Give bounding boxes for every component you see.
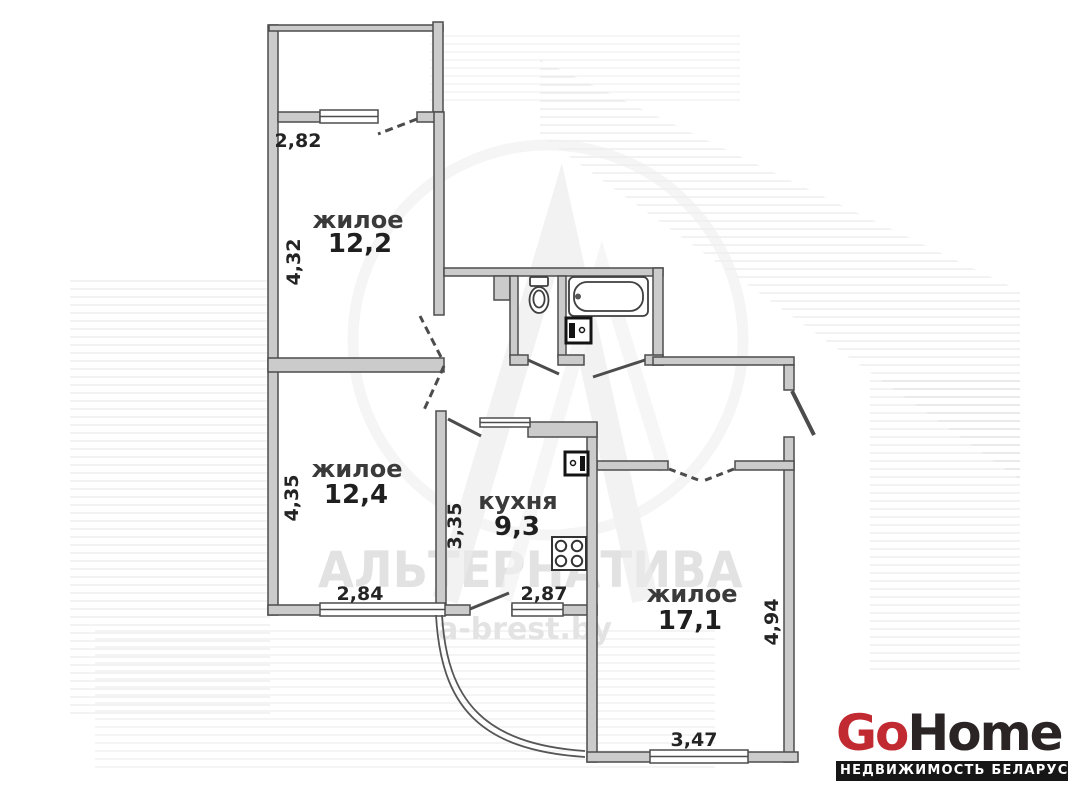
room2-label: жилое [311,455,402,483]
kitchen-area: 9,3 [494,512,540,542]
curved-balcony [436,615,585,757]
gohome-logo: GoHome НЕДВИЖИМОСТЬ БЕЛАРУСИ [836,708,1068,781]
bathtub-icon [569,277,648,316]
dimension-room3-width: 3,47 [671,729,718,751]
kitchen-door-leaf [448,419,481,436]
dimension-room2-depth: 4,35 [281,475,303,522]
floor-plan [0,0,1068,800]
bath-sink-icon [566,318,591,343]
dimension-kitchen-width: 2,87 [521,583,568,605]
stove-icon [552,537,586,570]
kitchen-balcony-door-leaf [470,593,509,609]
toilet-icon [530,277,549,313]
kitchen-label: кухня [478,487,557,515]
balcony-door-leaf [378,119,417,134]
entrance-door-leaf [792,391,814,435]
room1-door-leaf [420,316,441,357]
kitchen-sink-icon [565,452,588,475]
logo-tagline: НЕДВИЖИМОСТЬ БЕЛАРУСИ [836,761,1068,781]
logo-go-text: Go [836,704,907,762]
wc-door-leaf [528,360,559,374]
room1-area: 12,2 [328,229,392,259]
dimension-room2-width: 2,84 [337,583,384,605]
room2-area: 12,4 [324,480,388,510]
room3-area: 17,1 [658,606,722,636]
dimension-kitchen-depth: 3,35 [444,503,466,550]
dimension-room3-depth: 4,94 [761,599,783,646]
room3-double-door-leaf [703,469,734,481]
walls [268,22,798,762]
gohome-wordmark: GoHome [836,708,1068,758]
dimension-balcony-width: 2,82 [275,130,322,152]
dimension-room1-depth: 4,32 [283,239,305,286]
room3-label: жилое [646,580,737,608]
floor-plan-page: АЛЬТЕРНАТИВА a-brest.by [0,0,1068,800]
logo-home-text: Home [907,704,1061,762]
